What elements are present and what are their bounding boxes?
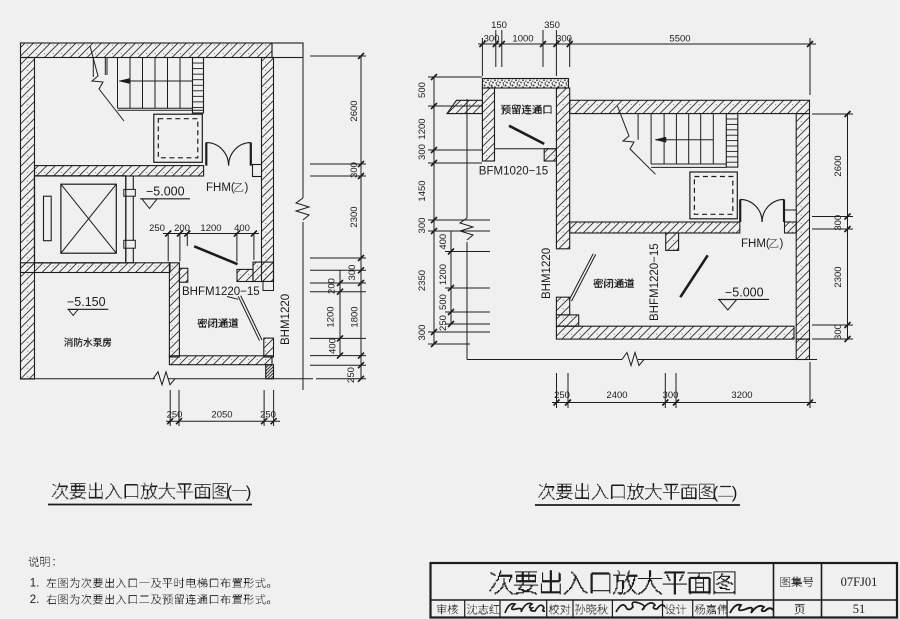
svg-text:250: 250 xyxy=(260,410,276,421)
svg-text:300: 300 xyxy=(833,324,844,340)
svg-text:BFM1020−15: BFM1020−15 xyxy=(479,166,548,178)
svg-text:250: 250 xyxy=(346,367,357,383)
svg-text:1800: 1800 xyxy=(350,306,361,327)
svg-text:300: 300 xyxy=(484,34,500,45)
svg-text:2300: 2300 xyxy=(349,206,360,227)
svg-text:BHFM1220−15: BHFM1220−15 xyxy=(649,243,661,321)
svg-text:2.: 2. xyxy=(30,594,40,606)
svg-text:): ) xyxy=(732,483,738,502)
svg-text:400: 400 xyxy=(438,234,449,250)
svg-text:): ) xyxy=(245,182,249,194)
svg-text:400: 400 xyxy=(328,338,339,354)
svg-text:): ) xyxy=(246,483,252,502)
svg-text:2350: 2350 xyxy=(417,270,428,291)
svg-text:BHM1220: BHM1220 xyxy=(541,248,553,299)
svg-text:2300: 2300 xyxy=(833,266,844,287)
svg-text:−5.150: −5.150 xyxy=(67,295,106,309)
svg-text:1.: 1. xyxy=(30,578,40,590)
svg-text:5500: 5500 xyxy=(669,34,690,45)
svg-text:1200: 1200 xyxy=(438,264,449,285)
svg-text::: : xyxy=(53,557,56,569)
svg-text:300: 300 xyxy=(417,218,428,234)
svg-text:07FJ01: 07FJ01 xyxy=(841,575,878,589)
svg-text:FHM(: FHM( xyxy=(741,238,770,250)
svg-text:500: 500 xyxy=(438,294,449,310)
svg-text:(: ( xyxy=(713,483,719,502)
svg-text:250: 250 xyxy=(149,223,165,234)
svg-text:300: 300 xyxy=(347,265,358,281)
svg-text:(: ( xyxy=(227,483,233,502)
svg-text:350: 350 xyxy=(544,20,560,31)
svg-text:2400: 2400 xyxy=(606,390,627,401)
svg-text:300: 300 xyxy=(417,325,428,341)
svg-text:2050: 2050 xyxy=(211,410,232,421)
svg-text:250: 250 xyxy=(438,315,449,331)
svg-text:3200: 3200 xyxy=(731,390,752,401)
svg-text:2600: 2600 xyxy=(349,100,360,121)
svg-text:300: 300 xyxy=(833,215,844,231)
svg-text:51: 51 xyxy=(853,602,866,616)
svg-text:300: 300 xyxy=(349,162,360,178)
svg-text:BHFM1220−15: BHFM1220−15 xyxy=(182,286,260,298)
svg-text:300: 300 xyxy=(663,390,679,401)
svg-text:FHM(: FHM( xyxy=(206,182,235,194)
svg-text:300: 300 xyxy=(556,34,572,45)
svg-text:1450: 1450 xyxy=(417,180,428,201)
svg-text:): ) xyxy=(780,238,784,250)
svg-text:1200: 1200 xyxy=(417,118,428,139)
svg-text:1200: 1200 xyxy=(326,306,337,327)
svg-text:250: 250 xyxy=(167,410,183,421)
svg-text:−5.000: −5.000 xyxy=(146,185,185,199)
svg-text:−5.000: −5.000 xyxy=(725,286,764,300)
svg-text:250: 250 xyxy=(554,390,570,401)
svg-text:BHM1220: BHM1220 xyxy=(280,294,292,345)
svg-text:1200: 1200 xyxy=(200,223,221,234)
svg-text:500: 500 xyxy=(417,82,428,98)
svg-text:1000: 1000 xyxy=(512,34,533,45)
svg-text:150: 150 xyxy=(491,20,507,31)
svg-text:2600: 2600 xyxy=(833,155,844,176)
svg-text:200: 200 xyxy=(327,278,338,294)
svg-text:300: 300 xyxy=(417,144,428,160)
svg-text:400: 400 xyxy=(234,223,250,234)
